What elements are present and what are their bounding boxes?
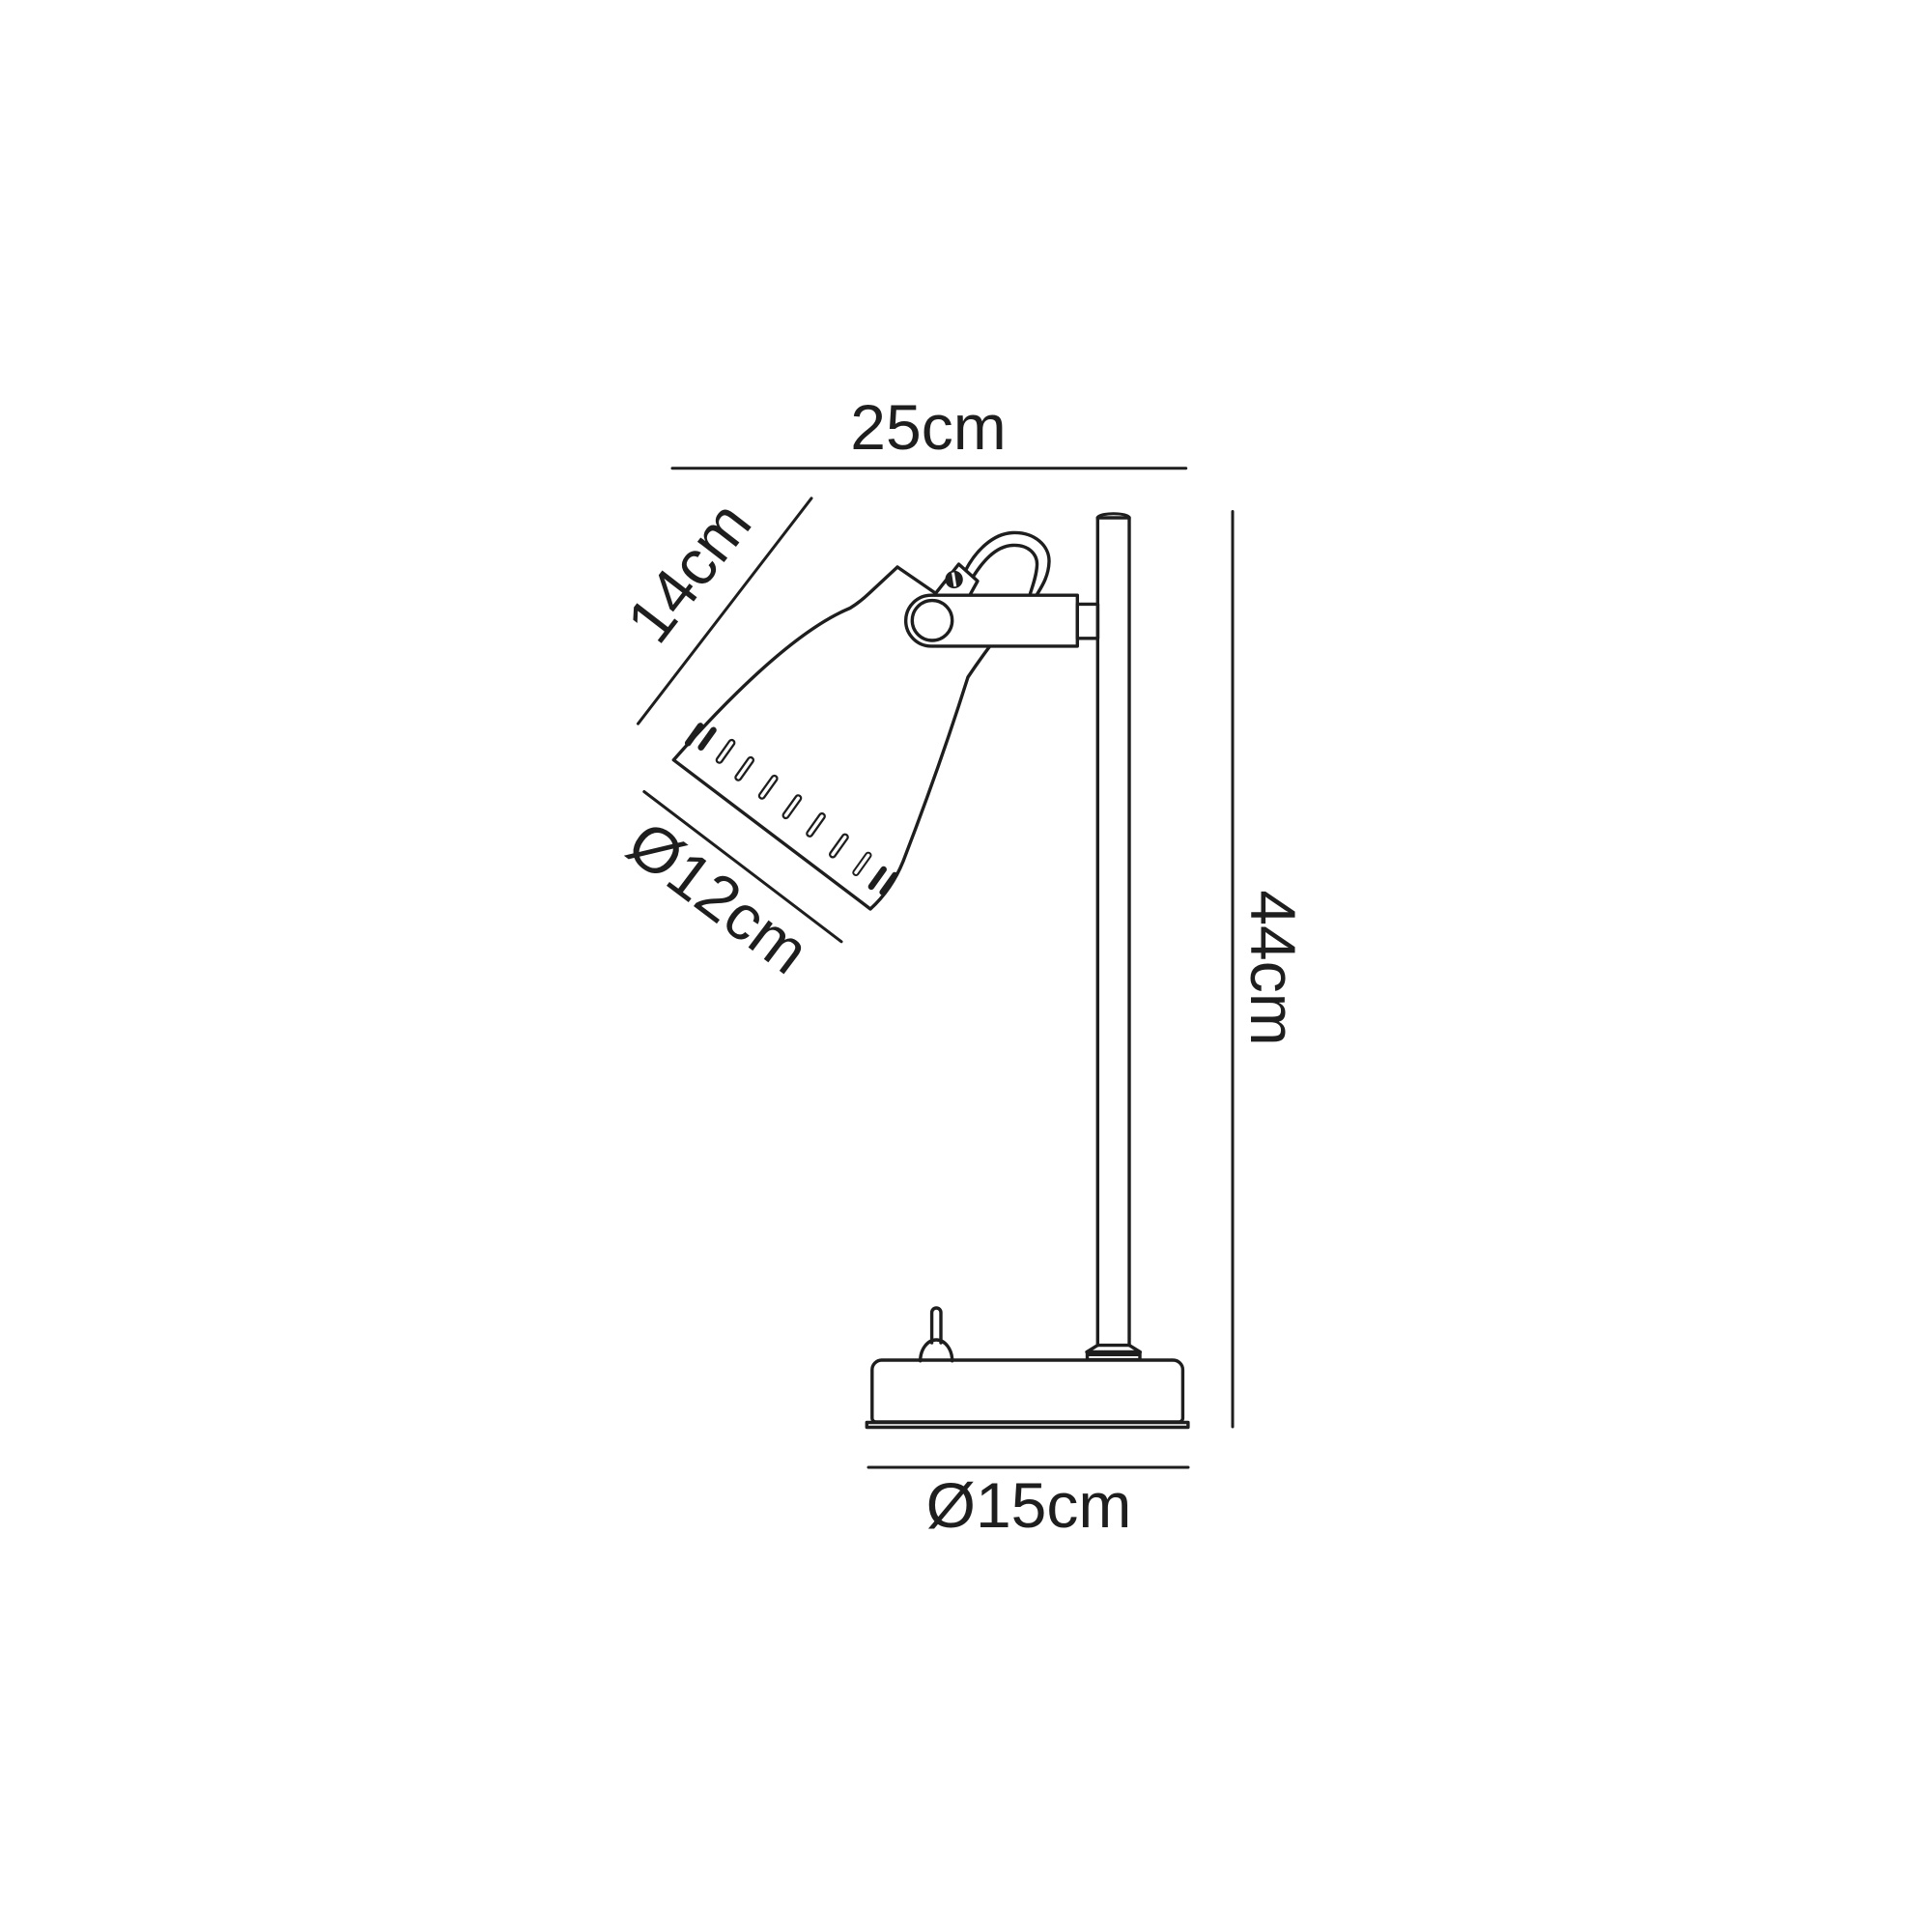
svg-text:25cm: 25cm bbox=[850, 391, 1006, 463]
svg-text:44cm: 44cm bbox=[1237, 890, 1309, 1045]
svg-text:Ø15cm: Ø15cm bbox=[926, 1469, 1132, 1541]
